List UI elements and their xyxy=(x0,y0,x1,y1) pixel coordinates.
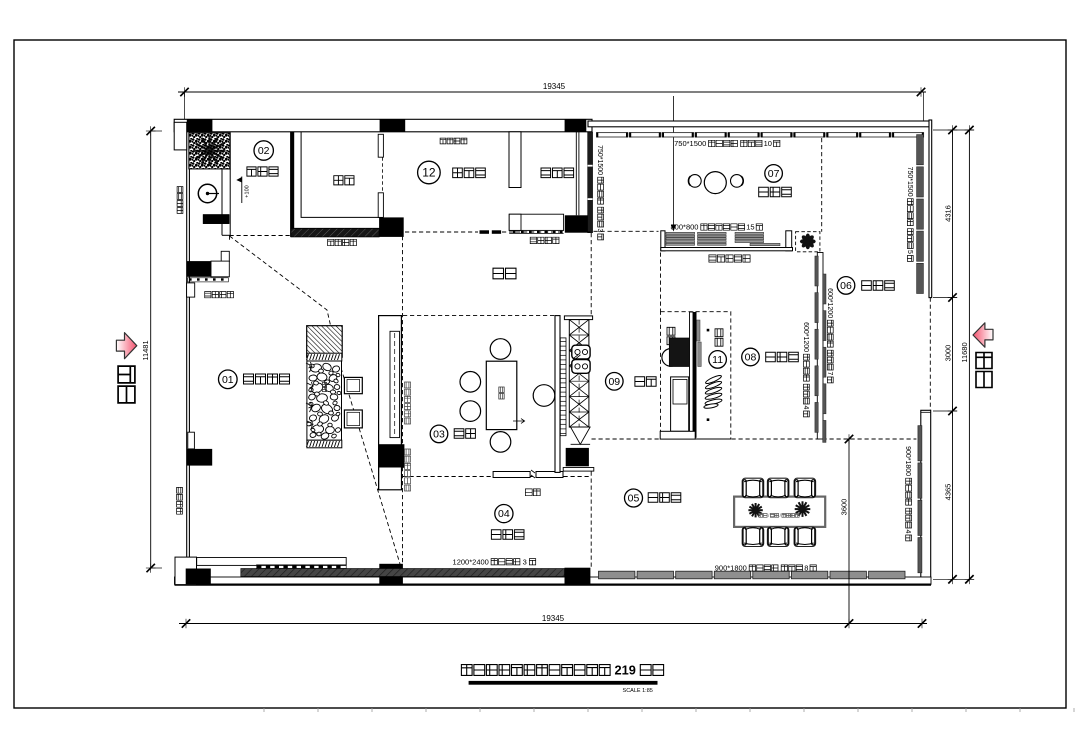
svg-text:750*1500: 750*1500 xyxy=(596,145,603,175)
svg-text:219: 219 xyxy=(615,662,636,677)
svg-text:3: 3 xyxy=(596,229,603,233)
svg-text:04: 04 xyxy=(498,508,510,520)
svg-text:750*1500: 750*1500 xyxy=(674,139,706,148)
svg-text:09: 09 xyxy=(608,376,620,388)
svg-text:600*1200: 600*1200 xyxy=(802,322,809,352)
svg-text:7: 7 xyxy=(826,372,833,376)
svg-text:4365: 4365 xyxy=(943,484,952,501)
svg-text:750*1500: 750*1500 xyxy=(906,167,913,197)
svg-text:19345: 19345 xyxy=(542,614,565,623)
svg-text:02: 02 xyxy=(258,145,270,157)
svg-text:11481: 11481 xyxy=(141,340,150,360)
svg-text:4: 4 xyxy=(802,406,809,410)
svg-text:15: 15 xyxy=(746,223,754,232)
svg-text:10: 10 xyxy=(764,139,772,148)
svg-text:08: 08 xyxy=(745,352,757,364)
svg-text:01: 01 xyxy=(222,374,234,386)
svg-text:SCALE 1:85: SCALE 1:85 xyxy=(623,688,653,694)
svg-text:8: 8 xyxy=(804,564,808,573)
svg-text:19345: 19345 xyxy=(543,82,566,91)
svg-text:4: 4 xyxy=(904,530,911,534)
svg-text:600*1200: 600*1200 xyxy=(826,288,833,318)
svg-text:3600: 3600 xyxy=(839,499,848,516)
svg-text:800*800: 800*800 xyxy=(671,223,699,232)
svg-text:3000: 3000 xyxy=(943,345,952,362)
svg-text:03: 03 xyxy=(433,429,445,441)
svg-text:07: 07 xyxy=(768,168,780,180)
svg-text:12: 12 xyxy=(422,166,436,180)
svg-text:+100: +100 xyxy=(244,185,250,197)
svg-text:5: 5 xyxy=(906,250,913,254)
svg-text:06: 06 xyxy=(840,280,852,292)
svg-text:1200*2400: 1200*2400 xyxy=(453,557,489,566)
svg-text:4316: 4316 xyxy=(943,205,952,222)
svg-text:900*1800: 900*1800 xyxy=(904,446,911,476)
svg-text:3: 3 xyxy=(523,557,527,566)
svg-text:05: 05 xyxy=(628,493,640,505)
svg-text:11680: 11680 xyxy=(960,342,969,362)
svg-text:900*1800: 900*1800 xyxy=(715,564,747,573)
svg-text:11: 11 xyxy=(712,354,723,366)
